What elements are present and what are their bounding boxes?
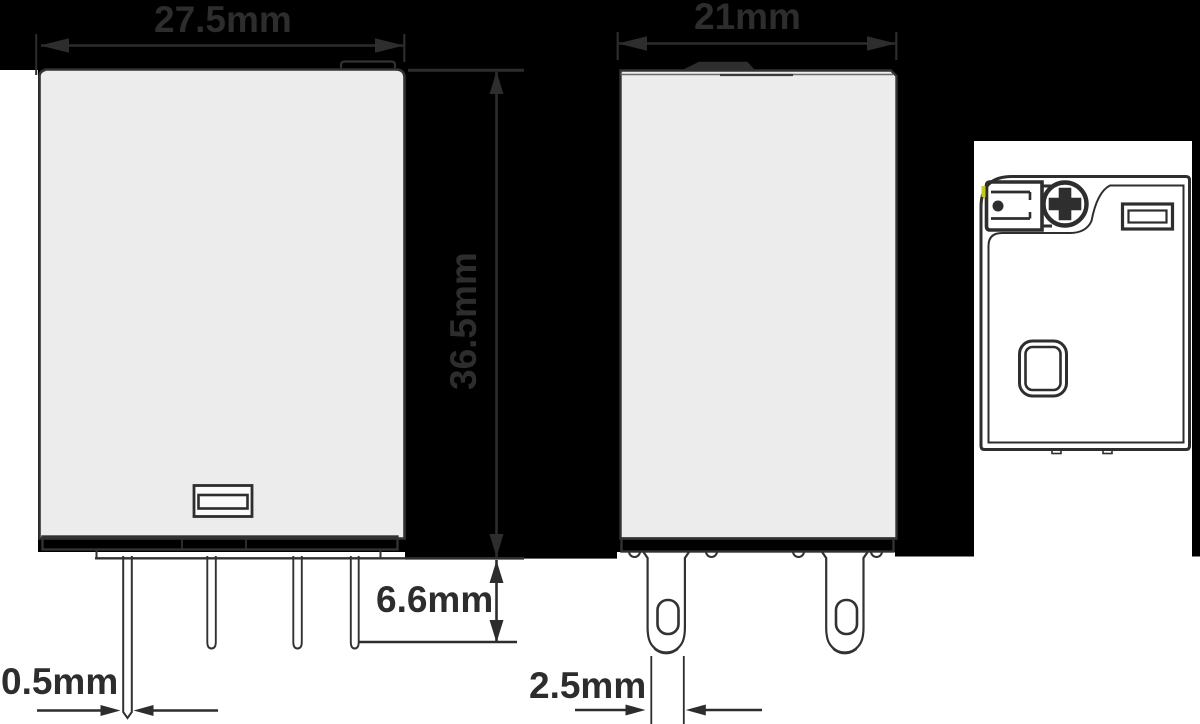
svg-text:21mm: 21mm	[694, 0, 801, 37]
svg-text:27.5mm: 27.5mm	[154, 0, 292, 40]
svg-text:6.6mm: 6.6mm	[376, 579, 493, 620]
svg-text:0.5mm: 0.5mm	[1, 661, 118, 702]
svg-text:2.5mm: 2.5mm	[529, 665, 646, 706]
svg-text:36.5mm: 36.5mm	[443, 252, 484, 390]
